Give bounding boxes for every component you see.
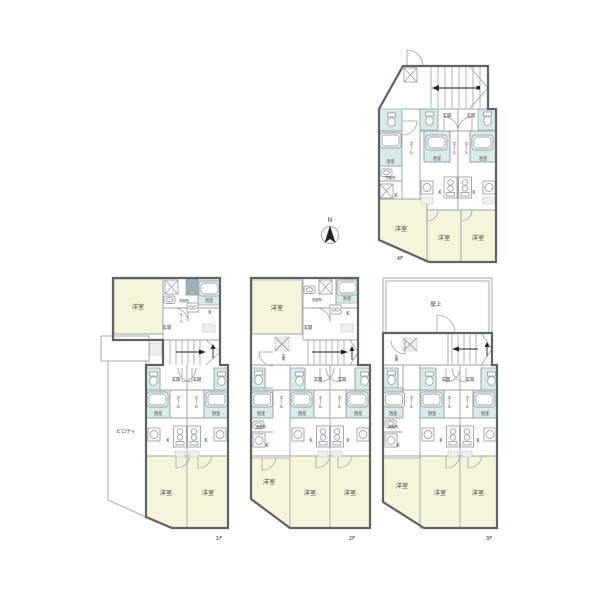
- bathtub-icon: [421, 392, 442, 407]
- washer-icon: [422, 428, 434, 441]
- room-label-western: 洋室: [472, 489, 484, 497]
- room-label-hall: ホール: [337, 395, 342, 409]
- room-label-entrance: 玄関: [314, 376, 323, 383]
- room-label-western: 洋室: [438, 234, 450, 242]
- room-label-kitchen: K: [439, 438, 443, 444]
- entry-mat: [421, 197, 433, 204]
- bathtub-icon: [380, 133, 401, 148]
- room-label-bath: 浴室: [343, 295, 352, 302]
- room-label-western: 洋室: [396, 482, 408, 490]
- room-label-western: 洋室: [132, 303, 144, 311]
- room-label-bath: 浴室: [389, 410, 398, 417]
- room-label-hall: ホール: [179, 313, 183, 323]
- room-label-entrance: 玄関: [304, 324, 313, 331]
- bathtub-icon: [252, 392, 273, 407]
- washer-icon: [484, 428, 496, 441]
- room-western-3f-left: [383, 458, 424, 528]
- stairs-2f: [308, 340, 358, 365]
- entry-mat: [203, 324, 215, 332]
- bathtub-icon: [199, 281, 220, 296]
- room-label-hall: ホール: [464, 141, 469, 155]
- entry-mat: [150, 343, 162, 355]
- room-label-kitchen: K: [476, 438, 480, 444]
- room-label-entrance: 玄関: [281, 353, 285, 361]
- kitchen-unit-icon: [444, 177, 457, 198]
- kitchen-stove-icon: [330, 305, 341, 314]
- room-label-western: 洋室: [395, 225, 407, 233]
- room-label-rooftop: 屋上: [430, 300, 442, 308]
- room-label-bath: 浴室: [212, 410, 221, 417]
- bathtub-icon: [384, 392, 405, 407]
- bathtub-icon: [426, 135, 447, 150]
- stairs-arrowhead-2f: [341, 350, 348, 355]
- bathtub-icon: [291, 392, 312, 407]
- room-label-entrance: 玄関: [338, 376, 347, 383]
- room-label-kitchen: K: [472, 190, 476, 196]
- stairs-arrowhead-3f: [452, 347, 459, 352]
- bathtub-icon: [474, 392, 495, 407]
- kitchen-unit-icon: [174, 426, 187, 447]
- room-label-western: 洋室: [202, 489, 214, 497]
- room-label-kitchen: K: [204, 438, 208, 444]
- floor-plan-1f: 洋室 洗面所 浴室 K ホール 玄関 ピロティ 玄関 玄関 ホール ホール 浴室…: [101, 278, 228, 542]
- toilet-icon: [484, 112, 492, 126]
- floor-label-4f: 4F: [397, 256, 404, 262]
- kitchen-unit-icon: [459, 177, 472, 198]
- room-label-kitchen: K: [309, 438, 313, 444]
- room-label-western: 洋室: [434, 489, 446, 497]
- room-label-western: 洋室: [271, 304, 283, 312]
- kitchen-unit-icon: [317, 426, 330, 447]
- floorplan-page: N 浴室 洗面所 K: [0, 0, 600, 600]
- kitchen-unit-icon: [331, 426, 344, 447]
- toilet-icon: [255, 371, 263, 385]
- room-label-kitchen: K: [438, 190, 442, 196]
- room-label-washroom: 洗面所: [385, 175, 396, 180]
- washer-icon: [404, 68, 417, 82]
- room-label-washroom: 洗面所: [179, 298, 190, 303]
- washbasin-icon: [304, 286, 315, 294]
- room-label-bath: 浴室: [433, 155, 442, 162]
- toilet-icon: [296, 372, 304, 386]
- stairs-arrowhead-1f: [199, 350, 206, 355]
- washer-icon: [148, 428, 160, 441]
- room-label-bath: 浴室: [479, 155, 488, 162]
- entry-mat: [189, 451, 199, 457]
- room-label-bath: 浴室: [386, 158, 395, 165]
- washer-icon: [165, 280, 178, 294]
- toilet-icon: [426, 372, 434, 386]
- room-label-western: 洋室: [304, 489, 316, 497]
- stairs-1f: [170, 340, 220, 365]
- entry-mat: [318, 451, 328, 457]
- washer-icon: [292, 428, 304, 441]
- bathtub-icon: [147, 392, 168, 407]
- entry-mat: [175, 451, 185, 457]
- entry-mat: [448, 451, 458, 457]
- toilet-icon: [361, 372, 369, 386]
- room-label-bath: 浴室: [257, 410, 266, 417]
- entry-mat: [332, 451, 342, 457]
- room-label-bath: 浴室: [205, 297, 214, 304]
- toilet-icon: [150, 372, 158, 386]
- kitchen-unit-icon: [188, 426, 201, 447]
- room-label-hall: ホール: [409, 141, 414, 155]
- entry-mat: [341, 324, 353, 332]
- room-label-hall: ホール: [194, 395, 199, 409]
- toilet-icon: [388, 371, 396, 385]
- room-label-piloti: ピロティ: [116, 429, 136, 435]
- room-label-entrance: 玄関: [443, 112, 452, 119]
- room-label-hall: ホール: [318, 395, 323, 409]
- room-label-kitchen: K: [394, 193, 398, 199]
- room-label-bath: 浴室: [428, 410, 437, 417]
- room-label-western: 洋室: [472, 234, 484, 242]
- room-label-kitchen: K: [396, 443, 400, 449]
- compass: N: [322, 217, 339, 244]
- floor-plan-4f: 浴室 洗面所 K ホール 玄関 玄関 浴室 浴室 ホール ホール K K 洋室 …: [379, 50, 496, 262]
- room-label-kitchen: K: [166, 438, 170, 444]
- room-label-kitchen: K: [346, 311, 350, 317]
- room-label-bath: 浴室: [298, 410, 307, 417]
- room-label-washroom: 洗面所: [388, 424, 399, 429]
- washbasin-icon: [164, 296, 175, 304]
- room-label-bath: 浴室: [481, 410, 490, 417]
- entry-mat: [483, 197, 495, 204]
- kitchen-unit-icon: [447, 426, 460, 447]
- room-label-kitchen: K: [346, 438, 350, 444]
- washer-icon: [214, 428, 226, 441]
- room-label-hall: ホール: [409, 395, 414, 409]
- stairs-arrowhead-4f: [432, 85, 439, 91]
- washer-icon: [319, 280, 332, 294]
- washer-icon: [357, 428, 369, 441]
- room-western-2f-left: [251, 458, 290, 528]
- room-label-entrance: 玄関: [467, 112, 476, 119]
- room-label-entrance: 玄関: [394, 354, 398, 362]
- toilet-icon: [388, 113, 396, 127]
- floor-label-1f: 1F: [216, 536, 223, 542]
- room-label-entrance: 玄関: [193, 376, 202, 383]
- room-label-kitchen: K: [208, 310, 212, 316]
- room-label-kitchen: K: [265, 443, 269, 449]
- entry-mat: [462, 451, 472, 457]
- piloti-area: [108, 360, 146, 517]
- washer-icon: [253, 434, 265, 447]
- room-label-entrance: 玄関: [163, 324, 172, 331]
- room-label-entrance: 玄関: [466, 376, 475, 383]
- floor-label-2f: 2F: [349, 536, 356, 542]
- bathtub-icon: [472, 135, 493, 150]
- room-label-entrance: 玄関: [442, 376, 451, 383]
- room-label-hall: ホール: [279, 395, 284, 409]
- room-label-bath: 浴室: [354, 410, 363, 417]
- bathtub-icon: [337, 280, 358, 295]
- washer-icon: [421, 181, 433, 194]
- kitchen-stove-icon: [187, 303, 198, 312]
- compass-north-arrow-icon: [325, 226, 336, 244]
- room-label-hall: ホール: [447, 395, 452, 409]
- room-label-western: 洋室: [263, 478, 275, 486]
- room-label-entrance: 玄関: [172, 376, 181, 383]
- bathtub-icon: [347, 392, 368, 407]
- compass-north-label: N: [328, 217, 333, 224]
- toilet-icon: [488, 372, 496, 386]
- room-label-washroom: 洗面所: [256, 424, 267, 429]
- stairs-up-arrowhead-2f: [350, 346, 355, 351]
- room-label-western: 洋室: [160, 489, 172, 497]
- floorplan-drawing: N 浴室 洗面所 K: [0, 0, 600, 600]
- room-label-washroom: 洗面所: [312, 297, 323, 302]
- room-label-bath: 浴室: [154, 410, 163, 417]
- bathtub-icon: [206, 392, 227, 407]
- toilet-icon: [218, 372, 226, 386]
- kitchen-unit-icon: [461, 426, 474, 447]
- room-label-hall: ホール: [176, 395, 181, 409]
- floor-label-3f: 3F: [486, 536, 493, 542]
- room-label-hall: ホール: [465, 395, 470, 409]
- washer-icon: [385, 434, 397, 447]
- room-label-western: 洋室: [344, 489, 356, 497]
- washer-icon: [483, 181, 495, 194]
- stairs-start-marker-4f: [477, 86, 481, 90]
- toilet-icon: [426, 112, 434, 126]
- floor-plan-2f: 洋室 洗面所 浴室 K 玄関 玄関 ホール 浴室 洗面所 K 玄関 玄関 ホール…: [251, 278, 370, 542]
- washer-icon: [380, 184, 393, 198]
- room-label-hall: ホール: [452, 141, 457, 155]
- floor-plan-3f: 屋上 玄関 浴室 洗面所 K ホール 玄関 玄関 ホール ホール 浴室 浴室 K…: [383, 278, 497, 542]
